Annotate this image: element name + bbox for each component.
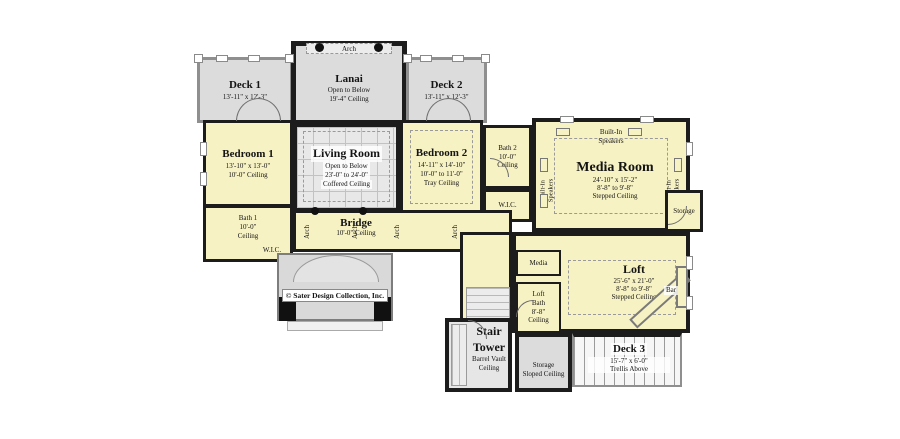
deck3-label: Deck 3 15'-7" x 6'-0" Trellis Above xyxy=(588,339,670,373)
deck2-name: Deck 2 xyxy=(430,78,462,92)
bedroom1-ceiling: 10'-0" Ceiling xyxy=(228,171,267,180)
bedroom2-tray-dash xyxy=(410,130,473,204)
bath1-sub2: Ceiling xyxy=(228,232,268,241)
bedroom1-name: Bedroom 1 xyxy=(222,147,273,161)
living-coffer-dash xyxy=(303,131,390,202)
bar-label: Bar xyxy=(664,286,678,295)
loft-bath-l1: Loft xyxy=(532,290,544,299)
column-marker xyxy=(285,54,294,63)
room-deck-3: Deck 3 15'-7" x 6'-0" Trellis Above xyxy=(572,333,682,387)
column-dot xyxy=(359,207,367,215)
arch-label: Arch xyxy=(393,225,401,239)
bath1-sub1: 10'-0" xyxy=(228,223,268,232)
room-bedroom-2: Bedroom 2 14'-11" x 14'-10" 10'-0" to 11… xyxy=(400,120,483,214)
porch: © Sater Design Collection, Inc. xyxy=(277,253,393,321)
window-mark xyxy=(686,296,693,310)
bath1-label: Bath 1 10'-0" Ceiling xyxy=(228,214,268,240)
copyright-text: © Sater Design Collection, Inc. xyxy=(282,289,388,302)
bath1-name: Bath 1 xyxy=(228,214,268,223)
column-dot xyxy=(311,207,319,215)
room-media-closet: Media xyxy=(516,250,561,276)
porch-arch xyxy=(293,255,379,282)
porch-step xyxy=(287,321,383,331)
bath2-name: Bath 2 xyxy=(498,144,516,153)
lanai-sub1: Open to Below xyxy=(328,86,370,95)
stair-tower-sub2: Ceiling xyxy=(467,364,511,373)
room-loft-block: Media Loft Bath 8'-8" Ceiling Loft 25'-6… xyxy=(512,232,690,333)
lanai-name: Lanai xyxy=(335,72,363,86)
room-bath-2: Bath 2 10'-0" Ceiling xyxy=(483,125,532,189)
arch-label: Arch xyxy=(451,225,459,239)
media-sub2: 8'-8" to 9'-8" xyxy=(550,184,680,192)
window-mark xyxy=(216,55,228,62)
column-marker xyxy=(194,54,203,63)
deck3-name: Deck 3 xyxy=(611,343,647,355)
room-living: Living Room Open to Below 23'-0" to 24'-… xyxy=(293,123,400,212)
speaker-mark xyxy=(540,194,548,208)
storage-sloped-l1: Storage xyxy=(533,361,554,370)
window-mark xyxy=(200,142,207,156)
speaker-mark xyxy=(674,158,682,172)
bath2-sub1: 10'-0" xyxy=(499,153,516,162)
loft-bath-l2: Bath xyxy=(532,299,545,308)
media-name: Media Room xyxy=(550,160,680,176)
lanai-sub2: 19'-4" Ceiling xyxy=(329,95,368,104)
window-mark xyxy=(452,55,464,62)
column-marker xyxy=(403,54,412,63)
loft-bath-l4: Ceiling xyxy=(528,316,549,325)
media-sub3: Stepped Ceiling xyxy=(550,192,680,200)
arch-label: Arch xyxy=(351,225,359,239)
deck1-name: Deck 1 xyxy=(229,78,261,92)
speaker-mark xyxy=(628,128,642,136)
speaker-mark xyxy=(540,158,548,172)
storage-sloped-l2: Sloped Ceiling xyxy=(523,370,565,379)
deck3-dim: 15'-7" x 6'-0" xyxy=(588,357,670,365)
arch-label: Arch xyxy=(303,225,311,239)
arch-label: Arch xyxy=(342,45,356,53)
bedroom1-dim: 13'-10" x 13'-0" xyxy=(226,162,270,171)
wic-right-label: W.I.C. xyxy=(498,201,516,210)
media-label: Media Room 24'-10" x 15'-2" 8'-8" to 9'-… xyxy=(550,160,680,200)
column-dot xyxy=(315,43,324,52)
speakers-label: Speakers xyxy=(571,137,651,146)
window-mark xyxy=(686,142,693,156)
tower-stairs xyxy=(451,324,467,386)
media-dim: 24'-10" x 15'-2" xyxy=(550,176,680,184)
stair-tower-sub1: Barrel Vault xyxy=(467,355,511,364)
window-mark xyxy=(420,55,432,62)
floor-plan: Deck 1 13'-11" x 12'-3" Lanai Open to Be… xyxy=(0,0,900,439)
room-bedroom-1: Bedroom 1 13'-10" x 13'-0" 10'-0" Ceilin… xyxy=(203,120,293,207)
column-marker xyxy=(481,54,490,63)
speaker-mark xyxy=(556,128,570,136)
window-mark xyxy=(640,116,654,123)
window-mark xyxy=(248,55,260,62)
media-closet-label: Media xyxy=(530,259,548,268)
loft-bath-l3: 8'-8" xyxy=(532,308,545,317)
window-mark xyxy=(686,256,693,270)
window-mark xyxy=(560,116,574,123)
deck3-sub: Trellis Above xyxy=(588,365,670,373)
window-mark xyxy=(200,172,207,186)
column-dot xyxy=(374,43,383,52)
room-storage-sloped: Storage Sloped Ceiling xyxy=(515,333,572,392)
